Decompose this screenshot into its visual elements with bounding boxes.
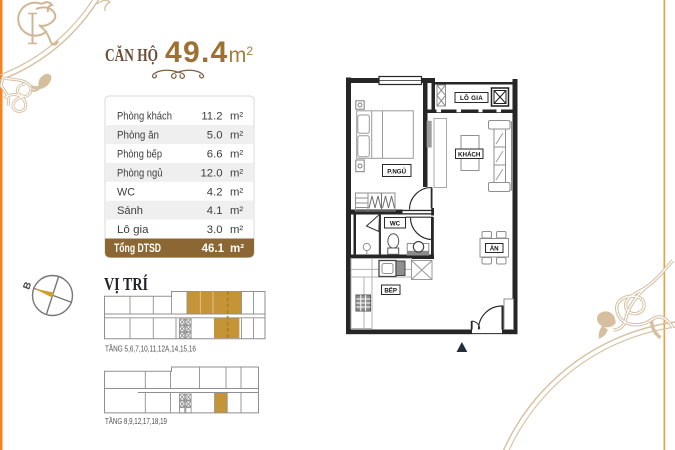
svg-text:KHÁCH: KHÁCH	[458, 151, 481, 158]
svg-text:11.2: 11.2	[201, 111, 222, 123]
svg-text:5.0: 5.0	[207, 130, 223, 142]
svg-text:Lô gia: Lô gia	[117, 224, 149, 236]
svg-text:m²: m²	[230, 224, 243, 236]
svg-text:m²: m²	[230, 111, 243, 123]
svg-text:Phòng ăn: Phòng ăn	[117, 130, 159, 142]
svg-text:6.6: 6.6	[207, 149, 223, 161]
svg-text:m²: m²	[230, 205, 243, 217]
svg-text:m²: m²	[230, 149, 243, 161]
svg-text:CĂN HỘ: CĂN HỘ	[105, 45, 158, 65]
svg-text:P.NGỦ: P.NGỦ	[387, 169, 406, 176]
svg-text:TẦNG 8,9,12,17,18,19: TẦNG 8,9,12,17,18,19	[105, 416, 167, 426]
svg-text:LÔ GIA: LÔ GIA	[460, 94, 483, 102]
svg-text:4.2: 4.2	[207, 186, 223, 198]
svg-text:ĂN: ĂN	[490, 246, 499, 253]
svg-text:12.0: 12.0	[201, 167, 223, 179]
svg-text:Phòng khách: Phòng khách	[117, 111, 172, 123]
svg-text:WC: WC	[117, 186, 135, 198]
svg-text:4.1: 4.1	[207, 205, 223, 217]
svg-text:m²: m²	[230, 167, 243, 179]
svg-text:3.0: 3.0	[207, 224, 223, 236]
svg-text:TẦNG 5,6,7,10,11,12A,14,15,16: TẦNG 5,6,7,10,11,12A,14,15,16	[105, 344, 196, 354]
svg-text:m²: m²	[230, 243, 244, 255]
svg-text:m²: m²	[230, 186, 243, 198]
svg-text:m²: m²	[230, 130, 243, 142]
svg-text:Sánh: Sánh	[117, 205, 143, 217]
svg-text:49.4: 49.4	[165, 36, 229, 69]
svg-text:WC: WC	[390, 221, 401, 228]
svg-text:VỊ TRÍ: VỊ TRÍ	[104, 274, 148, 294]
svg-text:BẾP: BẾP	[384, 287, 397, 294]
svg-text:Tổng DTSD: Tổng DTSD	[114, 243, 161, 255]
svg-text:Phòng bếp: Phòng bếp	[117, 149, 162, 161]
svg-text:46.1: 46.1	[202, 243, 225, 255]
svg-text:Phòng ngủ: Phòng ngủ	[117, 167, 163, 179]
